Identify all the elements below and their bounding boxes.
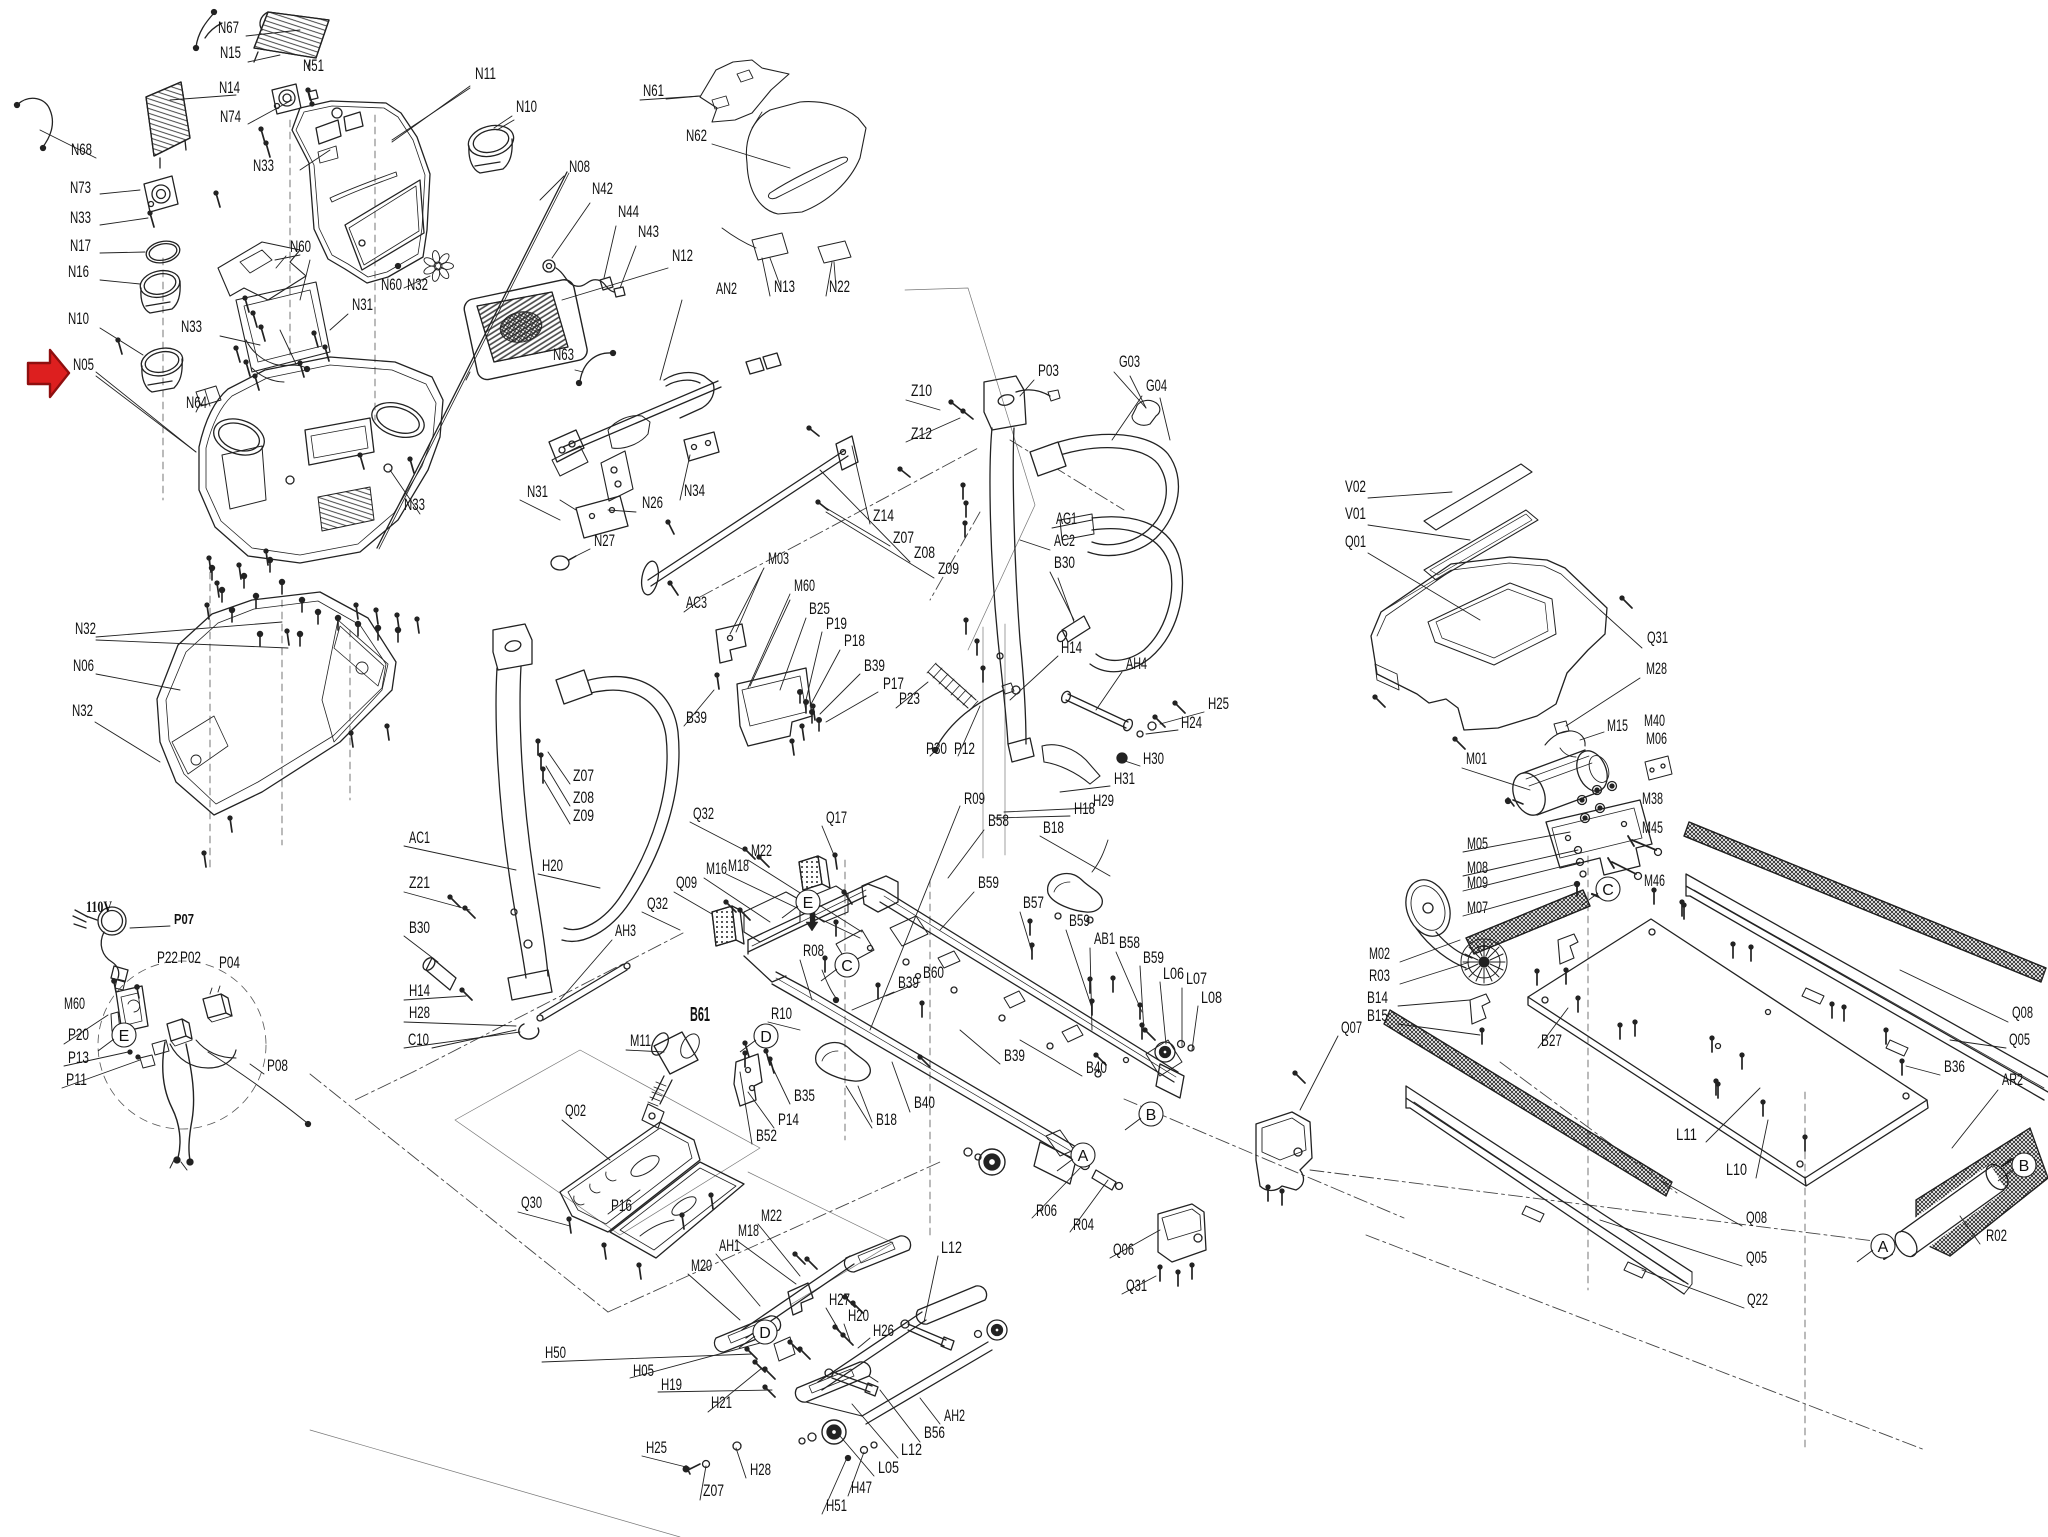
svg-text:R09: R09 [964,789,985,808]
svg-text:R06: R06 [1036,1201,1057,1220]
svg-text:Z07: Z07 [893,528,914,547]
svg-text:N42: N42 [592,179,613,198]
svg-text:D: D [759,1325,771,1342]
svg-text:Q17: Q17 [826,808,847,827]
svg-text:M15: M15 [1607,716,1628,735]
svg-text:N13: N13 [774,277,795,296]
svg-text:P07: P07 [174,911,194,928]
svg-text:Q30: Q30 [521,1193,542,1212]
svg-text:H29: H29 [1093,791,1114,810]
svg-text:B40: B40 [1086,1058,1107,1077]
svg-text:L05: L05 [878,1458,899,1477]
svg-text:Q05: Q05 [2009,1030,2030,1049]
svg-text:B36: B36 [1944,1057,1965,1076]
svg-text:L10: L10 [1726,1160,1747,1179]
svg-text:Q08: Q08 [2012,1003,2033,1022]
svg-text:H21: H21 [711,1393,732,1412]
svg-text:B30: B30 [409,918,430,937]
svg-text:N27: N27 [594,531,615,550]
svg-text:M22: M22 [761,1206,782,1225]
svg-text:E: E [119,1028,130,1045]
svg-text:Q09: Q09 [676,873,697,892]
svg-text:Z09: Z09 [573,806,594,825]
svg-text:B52: B52 [756,1126,777,1145]
svg-text:Q01: Q01 [1345,532,1366,551]
svg-text:H19: H19 [661,1375,682,1394]
svg-text:B39: B39 [686,708,707,727]
svg-text:N33: N33 [181,317,202,336]
svg-text:N74: N74 [220,107,241,126]
svg-text:110V: 110V [86,899,112,916]
svg-text:M16: M16 [706,859,727,878]
svg-text:Q31: Q31 [1647,628,1668,647]
svg-text:P22: P22 [157,948,178,967]
svg-text:N31: N31 [352,295,373,314]
svg-text:G04: G04 [1146,376,1167,395]
svg-text:C: C [841,958,853,975]
svg-text:Q06: Q06 [1113,1240,1134,1259]
svg-text:N08: N08 [569,157,590,176]
svg-text:H51: H51 [826,1496,847,1515]
svg-text:H25: H25 [1208,694,1229,713]
svg-text:N61: N61 [643,81,664,100]
svg-text:M20: M20 [691,1256,712,1275]
svg-text:AH4: AH4 [1126,654,1147,673]
svg-text:H30: H30 [1143,749,1164,768]
svg-text:M07: M07 [1467,898,1488,917]
svg-text:B57: B57 [1023,893,1044,912]
svg-text:N73: N73 [70,178,91,197]
svg-text:Q07: Q07 [1341,1018,1362,1037]
svg-text:M28: M28 [1646,659,1667,678]
svg-text:M38: M38 [1642,789,1663,808]
svg-text:AC2: AC2 [1054,531,1075,550]
svg-text:H14: H14 [1061,638,1082,657]
svg-text:N12: N12 [672,246,693,265]
svg-text:N68: N68 [71,140,92,159]
svg-text:M46: M46 [1644,871,1665,890]
svg-text:B35: B35 [794,1086,815,1105]
svg-text:R02: R02 [1986,1226,2007,1245]
svg-text:AB1: AB1 [1094,929,1115,948]
svg-text:Q31: Q31 [1126,1276,1147,1295]
svg-text:R04: R04 [1073,1215,1094,1234]
svg-text:B: B [2019,1158,2030,1175]
svg-text:P04: P04 [219,953,240,972]
svg-text:B58: B58 [1119,933,1140,952]
svg-text:N44: N44 [618,202,639,221]
svg-text:M03: M03 [768,549,789,568]
svg-text:B60: B60 [923,963,944,982]
svg-text:L08: L08 [1201,988,1222,1007]
svg-text:N60: N60 [290,237,311,256]
svg-text:AC1: AC1 [409,828,430,847]
svg-text:AH2: AH2 [944,1406,965,1425]
svg-text:N67: N67 [218,18,239,37]
svg-text:N33: N33 [70,208,91,227]
svg-text:N60: N60 [381,275,402,294]
svg-text:AN2: AN2 [716,279,737,298]
svg-text:P20: P20 [68,1025,89,1044]
svg-text:L06: L06 [1163,964,1184,983]
svg-text:H28: H28 [409,1003,430,1022]
svg-text:H18: H18 [1074,799,1095,818]
svg-text:M01: M01 [1466,749,1487,768]
svg-text:B56: B56 [924,1423,945,1442]
svg-text:P08: P08 [267,1056,288,1075]
svg-text:P18: P18 [844,631,865,650]
svg-text:B18: B18 [876,1110,897,1129]
svg-text:N31: N31 [527,482,548,501]
svg-text:M60: M60 [64,994,85,1013]
svg-text:H26: H26 [873,1321,894,1340]
svg-text:C: C [1602,882,1614,899]
svg-text:N10: N10 [516,97,537,116]
svg-text:M40: M40 [1644,711,1665,730]
svg-text:P16: P16 [611,1196,632,1215]
svg-text:H31: H31 [1114,769,1135,788]
svg-text:B59: B59 [1069,911,1090,930]
svg-text:N32: N32 [75,619,96,638]
svg-text:N16: N16 [68,262,89,281]
svg-text:P23: P23 [899,689,920,708]
svg-text:N32: N32 [72,701,93,720]
svg-text:L12: L12 [941,1238,962,1257]
svg-text:B39: B39 [898,973,919,992]
svg-text:M18: M18 [728,856,749,875]
svg-text:H20: H20 [542,856,563,875]
svg-text:V02: V02 [1345,477,1366,496]
svg-text:N43: N43 [638,222,659,241]
svg-text:Z10: Z10 [911,381,932,400]
svg-text:D: D [760,1029,772,1046]
svg-text:R08: R08 [803,941,824,960]
svg-text:M05: M05 [1467,834,1488,853]
svg-text:Q32: Q32 [693,804,714,823]
svg-text:M11: M11 [630,1031,651,1050]
svg-text:B40: B40 [914,1093,935,1112]
svg-text:N32: N32 [407,275,428,294]
svg-text:H05: H05 [633,1361,654,1380]
svg-text:P14: P14 [778,1110,799,1129]
svg-text:H50: H50 [545,1343,566,1362]
svg-text:Z14: Z14 [873,506,894,525]
svg-text:L07: L07 [1186,969,1207,988]
svg-text:B14: B14 [1367,988,1388,1007]
svg-text:Z08: Z08 [573,788,594,807]
svg-text:N06: N06 [73,656,94,675]
svg-text:H14: H14 [409,981,430,1000]
svg-text:R03: R03 [1369,966,1390,985]
svg-text:N17: N17 [70,236,91,255]
svg-text:AC3: AC3 [686,593,707,612]
svg-text:N63: N63 [553,345,574,364]
svg-text:AG1: AG1 [1056,509,1077,528]
svg-text:V01: V01 [1345,504,1366,523]
svg-text:Q02: Q02 [565,1101,586,1120]
svg-text:P12: P12 [954,739,975,758]
svg-text:H28: H28 [750,1460,771,1479]
svg-text:R10: R10 [771,1004,792,1023]
svg-text:P11: P11 [66,1070,87,1089]
svg-text:N33: N33 [404,495,425,514]
svg-text:N10: N10 [68,309,89,328]
svg-text:N51: N51 [303,56,324,75]
svg-text:B59: B59 [978,873,999,892]
svg-text:B27: B27 [1541,1031,1562,1050]
svg-text:H25: H25 [646,1438,667,1457]
svg-text:Z07: Z07 [703,1481,724,1500]
svg-text:L11: L11 [1676,1125,1697,1144]
svg-text:N05: N05 [73,355,94,374]
svg-text:B59: B59 [1143,948,1164,967]
svg-text:Z07: Z07 [573,766,594,785]
svg-text:N15: N15 [220,43,241,62]
svg-text:M02: M02 [1369,944,1390,963]
svg-text:B39: B39 [1004,1046,1025,1065]
svg-text:G03: G03 [1119,352,1140,371]
svg-text:P30: P30 [926,739,947,758]
svg-text:M60: M60 [794,576,815,595]
svg-text:H24: H24 [1181,713,1202,732]
svg-text:Q08: Q08 [1746,1208,1767,1227]
svg-text:AH1: AH1 [719,1236,740,1255]
svg-text:Z21: Z21 [409,873,430,892]
svg-text:Z12: Z12 [911,424,932,443]
svg-text:B18: B18 [1043,818,1064,837]
svg-text:B: B [1146,1107,1157,1124]
svg-text:M09: M09 [1467,873,1488,892]
svg-text:Q22: Q22 [1747,1290,1768,1309]
svg-text:Q32: Q32 [647,894,668,913]
svg-text:B61: B61 [690,1004,710,1026]
svg-text:P13: P13 [68,1048,89,1067]
svg-text:AH3: AH3 [615,921,636,940]
svg-text:A: A [1878,1239,1889,1256]
svg-text:M45: M45 [1642,818,1663,837]
svg-text:H27: H27 [829,1290,850,1309]
svg-text:B39: B39 [864,656,885,675]
svg-text:B30: B30 [1054,553,1075,572]
svg-text:N34: N34 [684,481,705,500]
svg-text:N22: N22 [829,277,850,296]
svg-text:P02: P02 [180,948,201,967]
svg-text:M18: M18 [738,1221,759,1240]
svg-text:Q05: Q05 [1746,1248,1767,1267]
svg-text:M22: M22 [751,841,772,860]
svg-text:C10: C10 [408,1030,429,1049]
svg-text:A: A [1078,1148,1089,1165]
svg-text:B15: B15 [1367,1006,1388,1025]
svg-text:E: E [803,895,814,912]
svg-text:H47: H47 [851,1478,872,1497]
svg-text:N14: N14 [219,78,240,97]
svg-text:P03: P03 [1038,361,1059,380]
svg-text:Z09: Z09 [938,559,959,578]
svg-text:Z08: Z08 [914,543,935,562]
svg-text:H20: H20 [848,1306,869,1325]
svg-text:N64: N64 [186,393,207,412]
svg-text:N33: N33 [253,156,274,175]
svg-text:N26: N26 [642,493,663,512]
svg-text:N62: N62 [686,126,707,145]
svg-text:AR2: AR2 [2002,1070,2023,1089]
svg-text:L12: L12 [901,1440,922,1459]
svg-text:N11: N11 [475,64,496,83]
svg-text:B58: B58 [988,811,1009,830]
svg-text:M06: M06 [1646,729,1667,748]
